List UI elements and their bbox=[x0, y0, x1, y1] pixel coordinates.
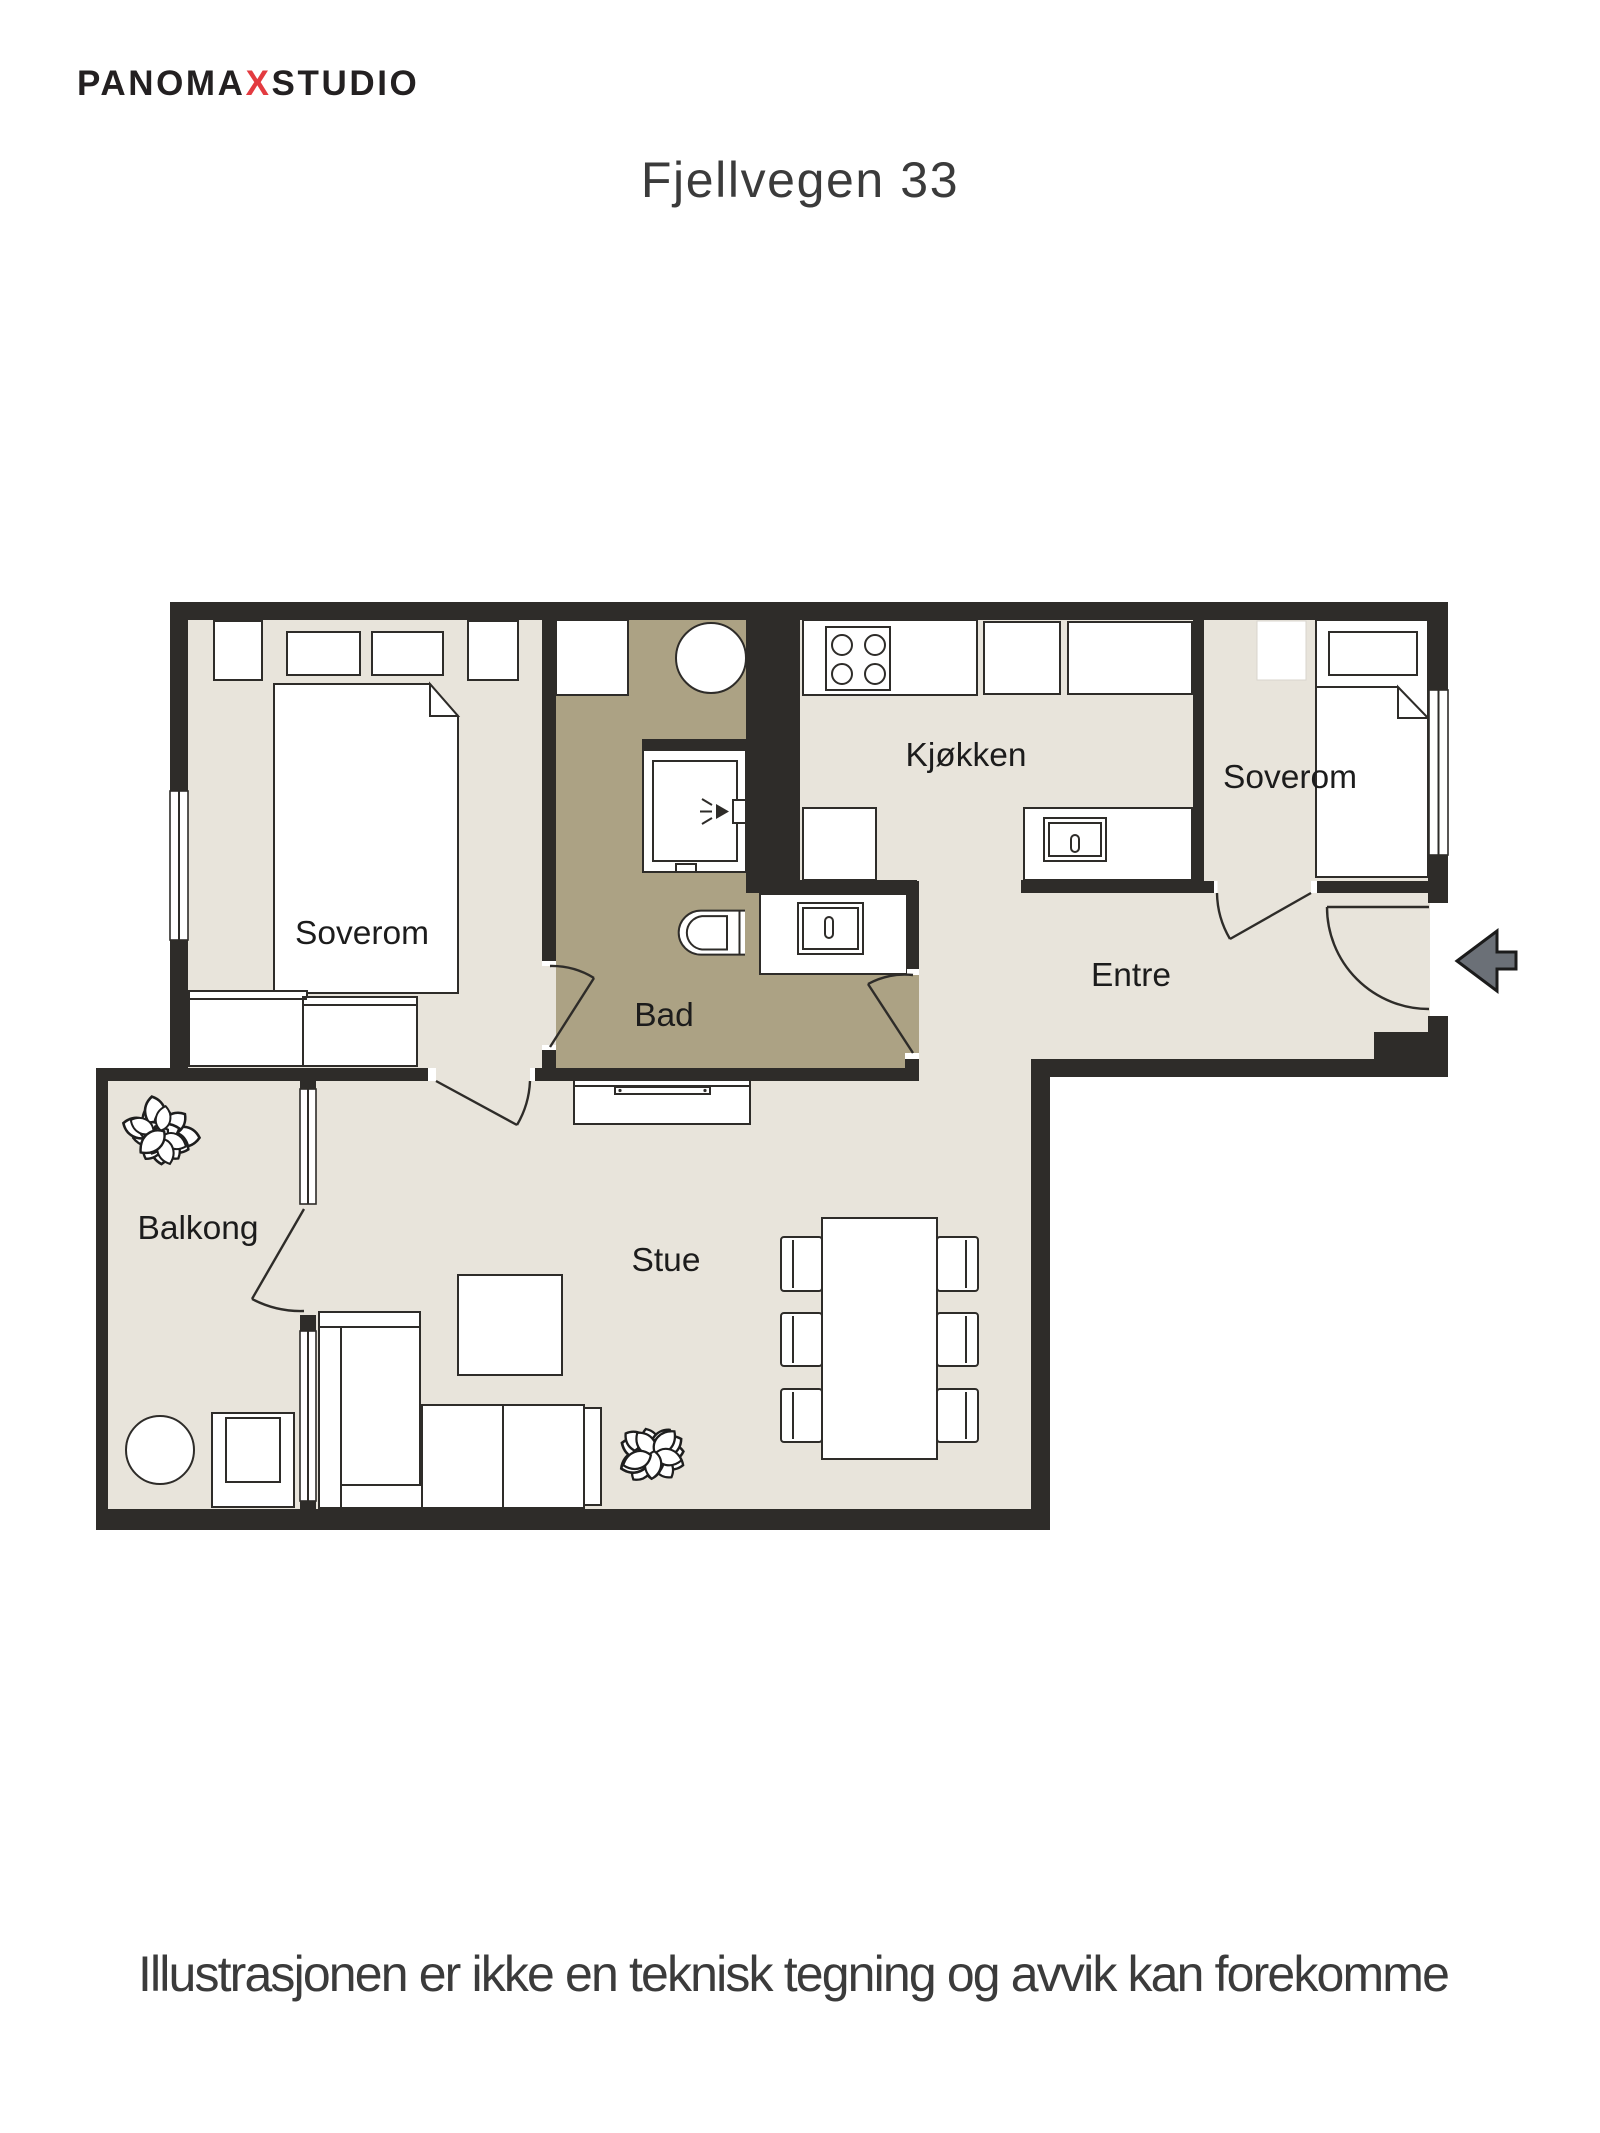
svg-text:Entre: Entre bbox=[1091, 957, 1171, 994]
svg-text:Fjellvegen 33: Fjellvegen 33 bbox=[641, 152, 959, 208]
svg-text:Balkong: Balkong bbox=[137, 1210, 258, 1247]
svg-text:Stue: Stue bbox=[632, 1242, 701, 1279]
svg-text:Soverom: Soverom bbox=[1223, 759, 1357, 796]
svg-text:Soverom: Soverom bbox=[295, 915, 429, 952]
svg-text:PANOMAXSTUDIO: PANOMAXSTUDIO bbox=[77, 64, 419, 103]
svg-text:Bad: Bad bbox=[634, 997, 694, 1034]
svg-text:Illustrasjonen er ikke en tekn: Illustrasjonen er ikke en teknisk tegnin… bbox=[138, 1946, 1448, 2002]
svg-text:Kjøkken: Kjøkken bbox=[905, 737, 1026, 774]
